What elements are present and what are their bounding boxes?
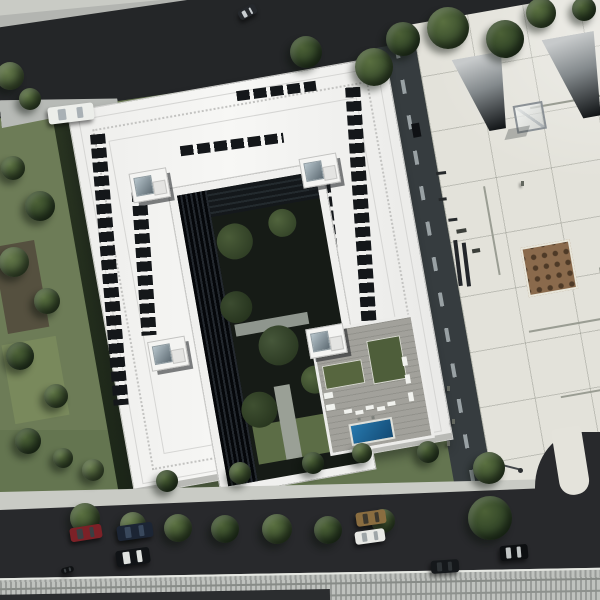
car-windshield xyxy=(437,562,443,571)
tree xyxy=(314,516,342,544)
tree xyxy=(473,452,505,484)
bulkhead-ledge xyxy=(329,335,344,351)
street-lamp-head xyxy=(518,468,523,473)
tree xyxy=(34,288,60,314)
tree xyxy=(156,470,178,492)
tree xyxy=(53,448,73,468)
bulkhead-ledge xyxy=(322,165,337,181)
exit-car xyxy=(431,559,460,574)
swimming-pool xyxy=(348,417,395,446)
car-windshield xyxy=(362,514,369,524)
car-windshield xyxy=(57,108,67,121)
tree xyxy=(262,514,292,544)
tree xyxy=(19,88,41,110)
tree xyxy=(352,443,372,463)
tree xyxy=(468,496,512,540)
car-windshield xyxy=(241,10,247,18)
courtyard-tree xyxy=(214,221,256,263)
bulkhead-glass xyxy=(310,331,331,352)
car-rear-window xyxy=(76,106,84,119)
car-windshield xyxy=(506,547,512,558)
car-windshield xyxy=(124,526,132,537)
car-windshield xyxy=(76,529,83,540)
tree xyxy=(25,191,55,221)
sun-lounger xyxy=(387,401,396,406)
expansion-joint xyxy=(483,186,501,275)
tree xyxy=(386,22,420,56)
tree xyxy=(229,462,251,484)
car-rear-window xyxy=(517,546,522,557)
tree xyxy=(211,515,239,543)
sun-lounger xyxy=(365,405,374,410)
pedestrian xyxy=(447,441,450,446)
sun-lounger xyxy=(377,406,386,411)
tree xyxy=(82,459,104,481)
rail xyxy=(0,578,600,591)
skylight-wedge xyxy=(451,51,516,137)
sun-lounger xyxy=(408,392,414,402)
skylight-wedge xyxy=(541,31,600,125)
car-windshield xyxy=(123,552,131,564)
sun-lounger xyxy=(405,374,411,384)
tree xyxy=(15,428,41,454)
car-rear-window xyxy=(139,525,145,536)
tree xyxy=(0,247,29,277)
car-rear-window xyxy=(136,550,142,562)
tree xyxy=(44,384,68,408)
terrace-cabinet xyxy=(326,404,336,411)
bulkhead-ledge xyxy=(171,348,186,364)
car-windshield xyxy=(63,568,66,573)
terrace-chair xyxy=(371,416,374,419)
courtyard-tree xyxy=(266,207,298,239)
aerial-site-render xyxy=(0,0,600,600)
car-rear-window xyxy=(68,567,71,572)
drain-grate xyxy=(456,228,467,234)
bulkhead-glass xyxy=(152,344,173,365)
car-rear-window xyxy=(89,527,95,537)
car-rear-window xyxy=(374,512,380,522)
tree xyxy=(164,514,192,542)
terrace-chair xyxy=(357,417,360,420)
expansion-joint xyxy=(529,317,600,333)
terrace-cabinet xyxy=(324,392,334,399)
pedestrian xyxy=(447,386,450,391)
sun-lounger xyxy=(401,356,407,366)
wood-tree-deck xyxy=(520,239,578,297)
bulkhead-glass xyxy=(303,161,324,182)
tree xyxy=(302,452,324,474)
car-windshield xyxy=(361,532,368,542)
terrace-garden xyxy=(322,359,366,390)
tree xyxy=(427,7,469,49)
tree xyxy=(355,48,393,86)
drain-grate xyxy=(472,248,481,253)
expansion-joint xyxy=(561,384,600,398)
bulkhead-glass xyxy=(133,175,154,196)
tree xyxy=(417,441,439,463)
building-roof xyxy=(67,55,454,495)
car-rear-window xyxy=(247,7,253,14)
car-rear-window xyxy=(373,530,378,540)
tree xyxy=(6,342,34,370)
entrance-car xyxy=(499,543,528,560)
sun-lounger xyxy=(344,409,353,414)
sun-lounger xyxy=(355,410,364,415)
tree xyxy=(486,20,524,58)
lane-object xyxy=(411,123,421,138)
canopy-shadow xyxy=(504,125,530,140)
tree xyxy=(290,36,322,68)
bulkhead-ledge xyxy=(152,180,167,196)
car-rear-window xyxy=(448,561,453,570)
tree xyxy=(1,156,25,180)
pedestrian xyxy=(452,419,455,424)
pedestrian xyxy=(521,181,524,186)
